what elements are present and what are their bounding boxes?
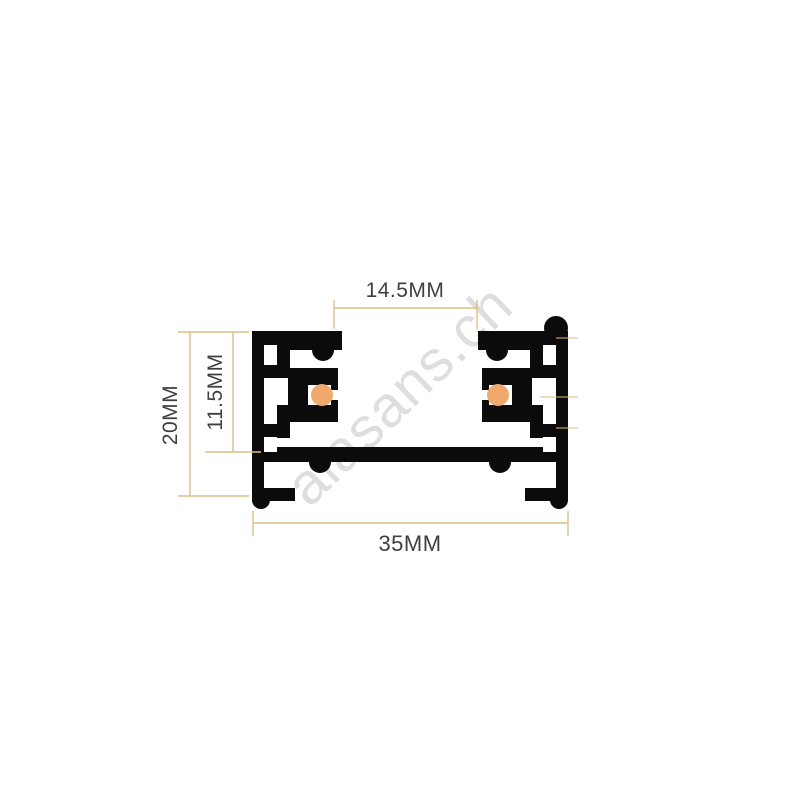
rail-bottom-bar (252, 447, 568, 462)
dimension-label-inner-height: 11.5MM (204, 353, 227, 430)
conductor-left (311, 384, 333, 406)
dimension-label-slot-width: 14.5MM (366, 279, 445, 302)
dimension-label-overall-height: 20MM (159, 385, 182, 445)
rail-top-right-bump (544, 316, 568, 340)
track-rail-cross-section-diagram: alasans.ch (0, 0, 800, 800)
conductor-right (487, 384, 509, 406)
dimension-label-overall-width: 35MM (378, 531, 441, 556)
